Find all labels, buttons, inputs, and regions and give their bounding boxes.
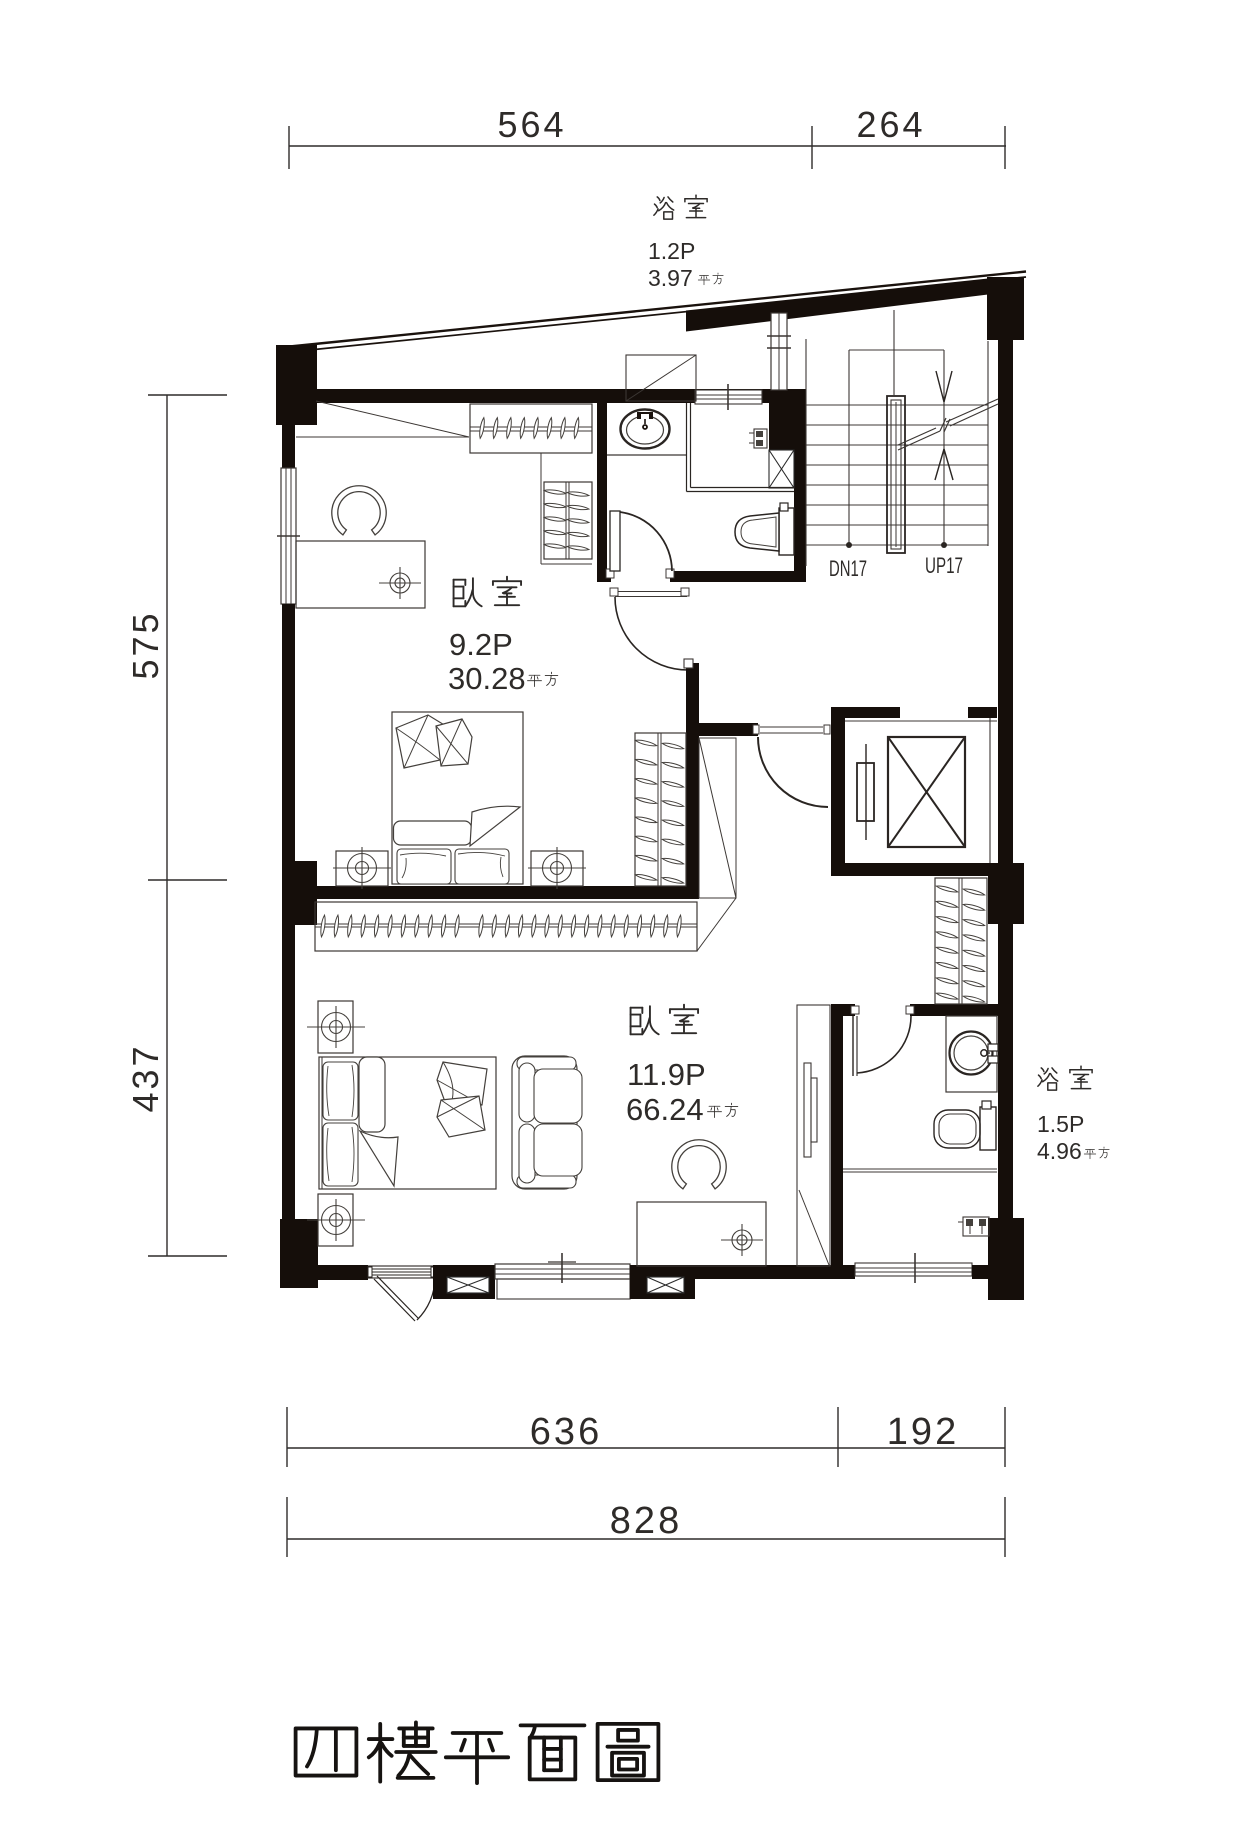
svg-text:1.5P: 1.5P <box>1037 1111 1084 1137</box>
svg-text:11.9P: 11.9P <box>627 1057 706 1092</box>
svg-text:3.97: 3.97 <box>648 265 693 291</box>
svg-text:66.24: 66.24 <box>626 1092 704 1127</box>
svg-text:828: 828 <box>610 1500 682 1542</box>
svg-text:575: 575 <box>125 610 166 679</box>
svg-text:192: 192 <box>887 1411 959 1453</box>
svg-text:DN17: DN17 <box>829 556 867 581</box>
svg-text:30.28: 30.28 <box>448 661 526 696</box>
svg-text:564: 564 <box>497 104 566 145</box>
svg-text:9.2P: 9.2P <box>449 627 513 662</box>
svg-text:437: 437 <box>125 1043 166 1112</box>
svg-text:4.96: 4.96 <box>1037 1138 1082 1164</box>
svg-text:1.2P: 1.2P <box>648 238 695 264</box>
svg-text:UP17: UP17 <box>925 553 963 578</box>
svg-text:636: 636 <box>530 1411 602 1453</box>
svg-text:264: 264 <box>856 104 925 145</box>
